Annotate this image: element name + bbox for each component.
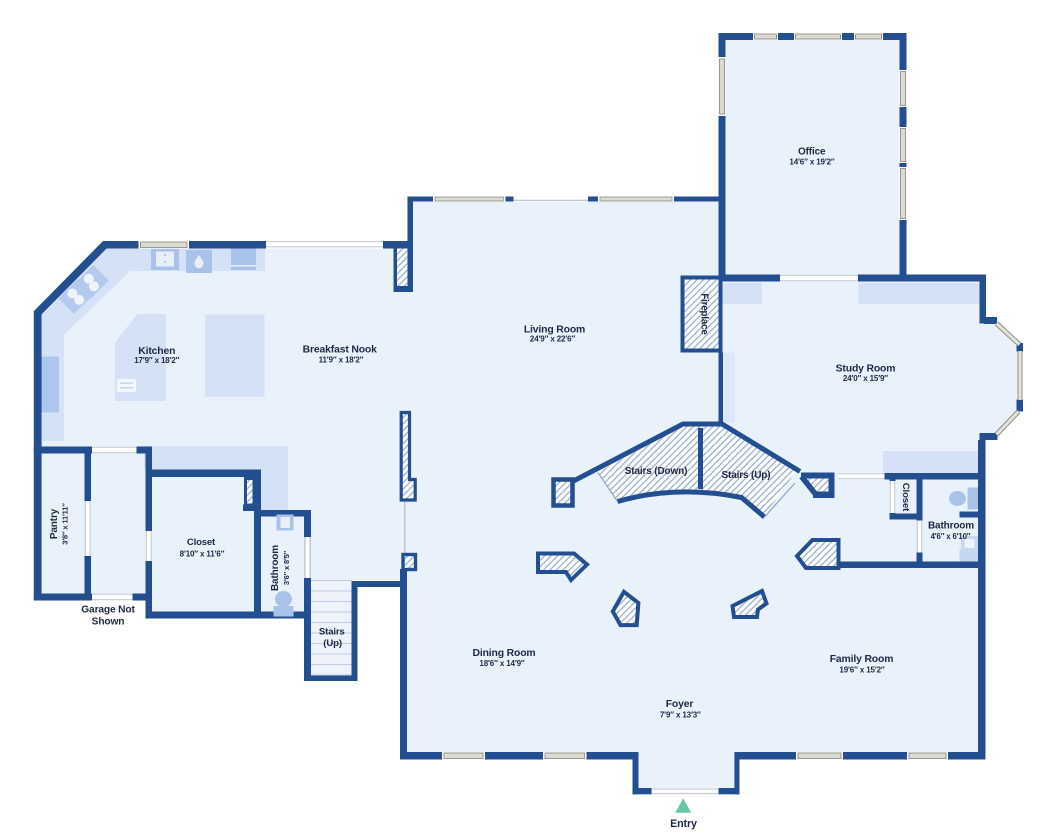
svg-text:19′6″ x 15′2″: 19′6″ x 15′2″ <box>839 666 884 675</box>
svg-text:Dining Room: Dining Room <box>473 648 536 659</box>
svg-text:Study Room: Study Room <box>836 363 896 374</box>
svg-text:Bathroom: Bathroom <box>928 520 974 531</box>
svg-text:Entry: Entry <box>670 818 697 830</box>
svg-text:Family Room: Family Room <box>830 654 894 665</box>
svg-text:18′6″ x 14′9″: 18′6″ x 14′9″ <box>479 659 524 668</box>
svg-text:11′9″ x 18′2″: 11′9″ x 18′2″ <box>319 356 364 365</box>
svg-text:4′6″ x 6′10″: 4′6″ x 6′10″ <box>931 532 971 541</box>
svg-text:Breakfast Nook: Breakfast Nook <box>303 344 377 355</box>
svg-text:24′9″ x 22′6″: 24′9″ x 22′6″ <box>530 335 575 344</box>
svg-text:Stairs (Down): Stairs (Down) <box>625 466 688 477</box>
svg-text:Foyer: Foyer <box>666 699 694 710</box>
svg-text:Closet: Closet <box>187 537 216 548</box>
svg-text:24′0″ x 15′9″: 24′0″ x 15′9″ <box>843 374 888 383</box>
svg-text:Pantry: Pantry <box>49 508 60 539</box>
svg-text:3′6″ x 8′5″: 3′6″ x 8′5″ <box>282 550 291 585</box>
svg-text:Closet: Closet <box>900 483 911 512</box>
svg-text:7′9″ x 13′3″: 7′9″ x 13′3″ <box>660 710 701 719</box>
svg-text:Stairs (Up): Stairs (Up) <box>722 470 771 481</box>
svg-text:14′6″ x 19′2″: 14′6″ x 19′2″ <box>789 158 834 167</box>
svg-text:Shown: Shown <box>92 617 125 628</box>
svg-text:8′10″ x 11′6″: 8′10″ x 11′6″ <box>180 549 225 558</box>
svg-text:17′9″ x 18′2″: 17′9″ x 18′2″ <box>134 356 179 365</box>
svg-text:3′8″ x 11′11″: 3′8″ x 11′11″ <box>61 503 70 545</box>
svg-text:Bathroom: Bathroom <box>270 545 281 591</box>
svg-text:Fireplace: Fireplace <box>699 293 710 335</box>
svg-text:Office: Office <box>798 147 826 158</box>
svg-text:(Up): (Up) <box>323 638 342 649</box>
svg-text:Stairs: Stairs <box>319 626 345 637</box>
svg-text:Garage Not: Garage Not <box>81 604 135 615</box>
